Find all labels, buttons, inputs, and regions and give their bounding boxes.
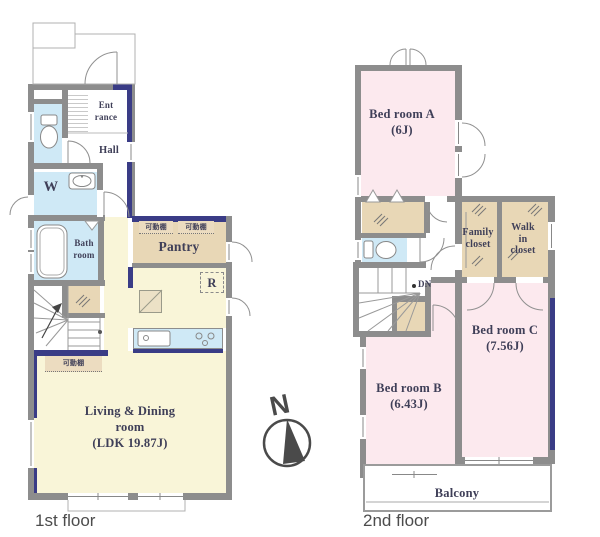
toilet-icon-2f bbox=[364, 241, 396, 259]
closet-folding-marks bbox=[366, 190, 404, 202]
toilet-icon-1f bbox=[41, 115, 58, 148]
label-hall: Hall bbox=[93, 144, 125, 157]
dn-dot bbox=[412, 284, 416, 288]
toilet-door-swing-1f bbox=[68, 141, 90, 163]
caption-1st-floor: 1st floor bbox=[35, 511, 95, 531]
stairs-arrow bbox=[42, 303, 102, 338]
kitchen-door-swing bbox=[232, 298, 250, 316]
family-closet-door-swing bbox=[431, 246, 455, 270]
bath-folding-door bbox=[85, 221, 99, 230]
hall-door-swing bbox=[104, 192, 129, 217]
stove-icon bbox=[196, 333, 214, 346]
bedroom-a-door-swing bbox=[427, 202, 447, 222]
label-shelf-a: 可動棚 bbox=[139, 223, 173, 232]
pantry-door-swing bbox=[232, 242, 252, 262]
label-pantry: Pantry bbox=[144, 238, 214, 255]
label-dn: DN bbox=[418, 279, 440, 291]
label-bathroom: Bath room bbox=[66, 238, 102, 261]
label-walk-in-closet: Walk in closet bbox=[501, 222, 545, 257]
walk-in-closet-door-swing bbox=[516, 283, 543, 310]
bedroom-c-door-swing bbox=[467, 283, 494, 310]
bathtub-icon bbox=[37, 225, 67, 278]
casement-windows-top bbox=[390, 49, 426, 65]
porch-outline bbox=[33, 23, 135, 84]
label-bedroom-a: Bed room A (6J) bbox=[345, 106, 459, 138]
side-door-swing bbox=[10, 197, 28, 215]
label-balcony: Balcony bbox=[407, 485, 507, 501]
floorplan: Ent rance Hall W Bath room Pantry 可動棚 可動… bbox=[0, 0, 600, 537]
hanger-marks-1f bbox=[76, 295, 90, 307]
label-family-closet: Family closet bbox=[456, 227, 500, 250]
eaves-line bbox=[68, 500, 185, 511]
label-refrigerator: R bbox=[200, 275, 224, 291]
label-entrance: Ent rance bbox=[86, 100, 126, 123]
stairs-2f bbox=[359, 268, 420, 331]
sink-icon bbox=[138, 331, 170, 346]
stairs-1f bbox=[34, 286, 100, 350]
entrance-door-swing bbox=[85, 52, 117, 84]
label-bedroom-b: Bed room B (6.43J) bbox=[352, 380, 466, 412]
compass bbox=[264, 419, 310, 466]
label-ldk: Living & Dining room (LDK 19.87J) bbox=[60, 403, 200, 451]
label-shelf-b: 可動棚 bbox=[178, 223, 214, 232]
caption-2nd-floor: 2nd floor bbox=[363, 511, 429, 531]
toilet-door-swing-2f bbox=[420, 238, 444, 262]
cupboard-diagonal bbox=[139, 290, 162, 313]
washbasin-icon bbox=[69, 173, 95, 189]
casement-windows-right bbox=[462, 123, 485, 177]
label-bedroom-c: Bed room C (7.56J) bbox=[448, 322, 562, 354]
label-washroom: W bbox=[40, 178, 62, 197]
label-shelf-c: 可動棚 bbox=[45, 359, 102, 368]
